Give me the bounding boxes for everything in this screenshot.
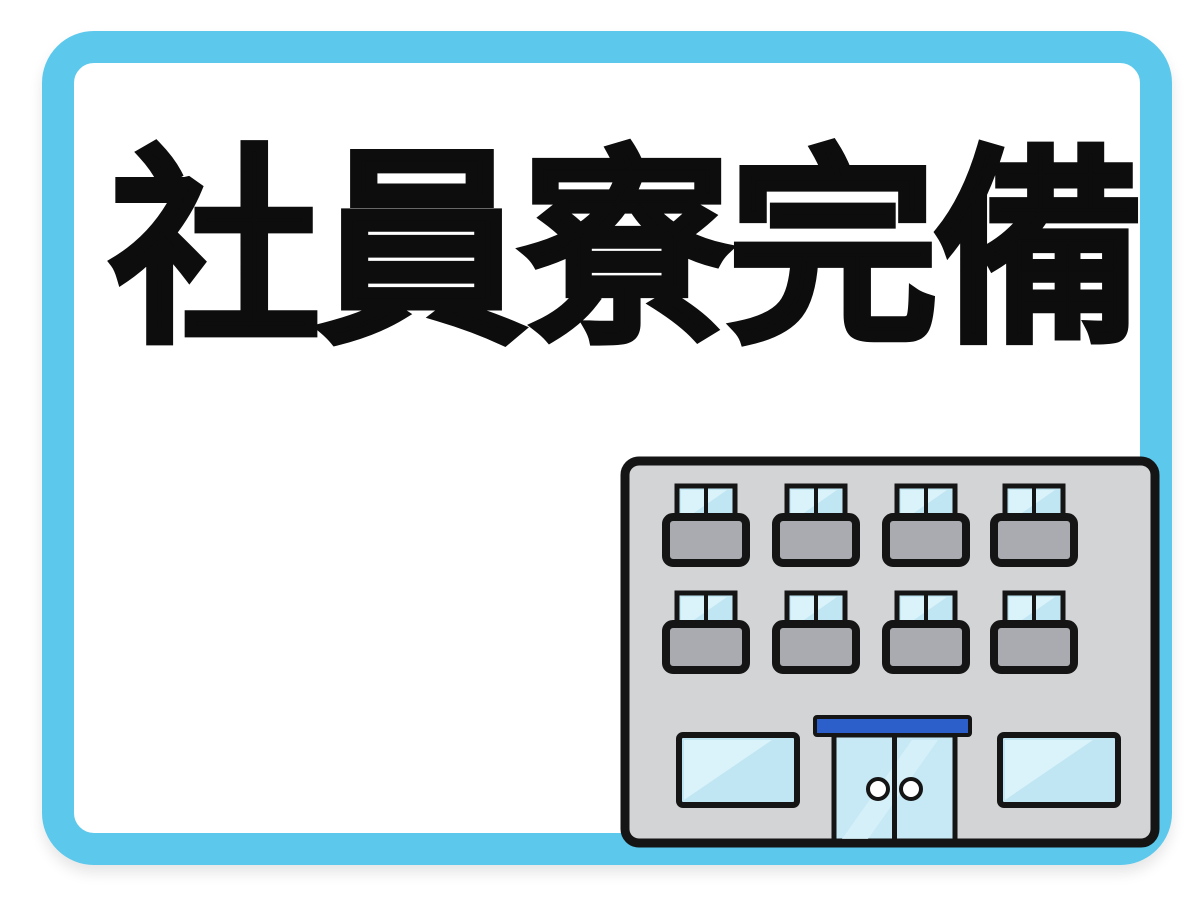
entrance [815,717,970,841]
ground-floor-window-left [679,735,797,805]
window-balcony-unit [886,486,966,563]
window-balcony-unit [776,486,856,563]
window-balcony-unit [994,486,1074,563]
window-balcony-unit [666,486,746,563]
door-handle-icon [901,779,921,799]
entrance-sign [815,717,970,735]
dormitory-building-illustration [620,456,1160,848]
window-balcony-unit [666,593,746,670]
window-balcony-unit [886,593,966,670]
banner-canvas: 社員寮完備 [0,0,1200,900]
ground-floor-window-right [1000,735,1118,805]
banner-frame: 社員寮完備 [42,31,1172,865]
banner-title: 社員寮完備 [110,141,1104,362]
window-balcony-unit [994,593,1074,670]
door-handle-icon [868,779,888,799]
window-balcony-unit [776,593,856,670]
